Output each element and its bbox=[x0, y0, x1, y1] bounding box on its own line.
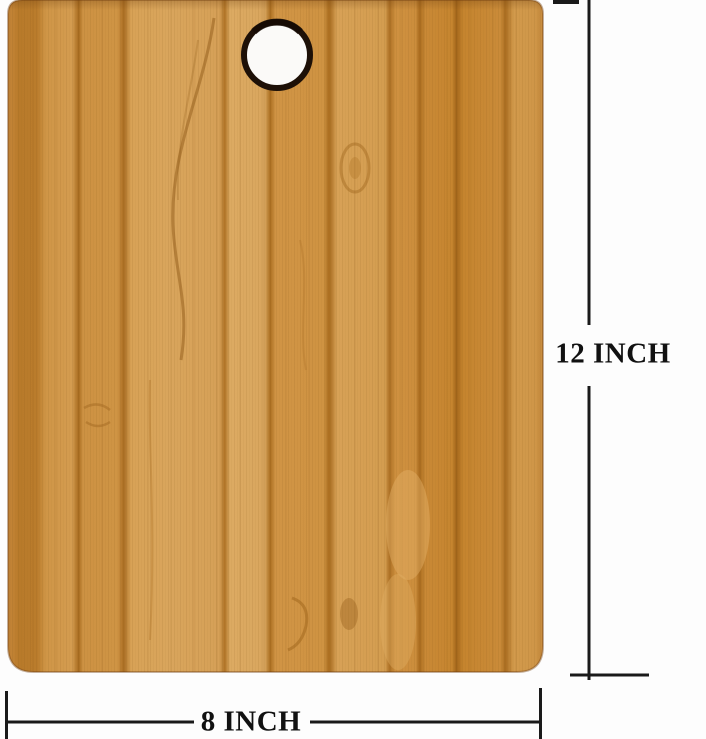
hang-hole bbox=[244, 22, 310, 88]
height-dimension-label: 12 INCH bbox=[549, 340, 676, 369]
width-dimension-label: 8 INCH bbox=[195, 708, 307, 737]
scene-graphic bbox=[0, 0, 706, 739]
product-image: 12 INCH 8 INCH bbox=[0, 0, 706, 739]
cutting-board bbox=[8, 0, 543, 672]
